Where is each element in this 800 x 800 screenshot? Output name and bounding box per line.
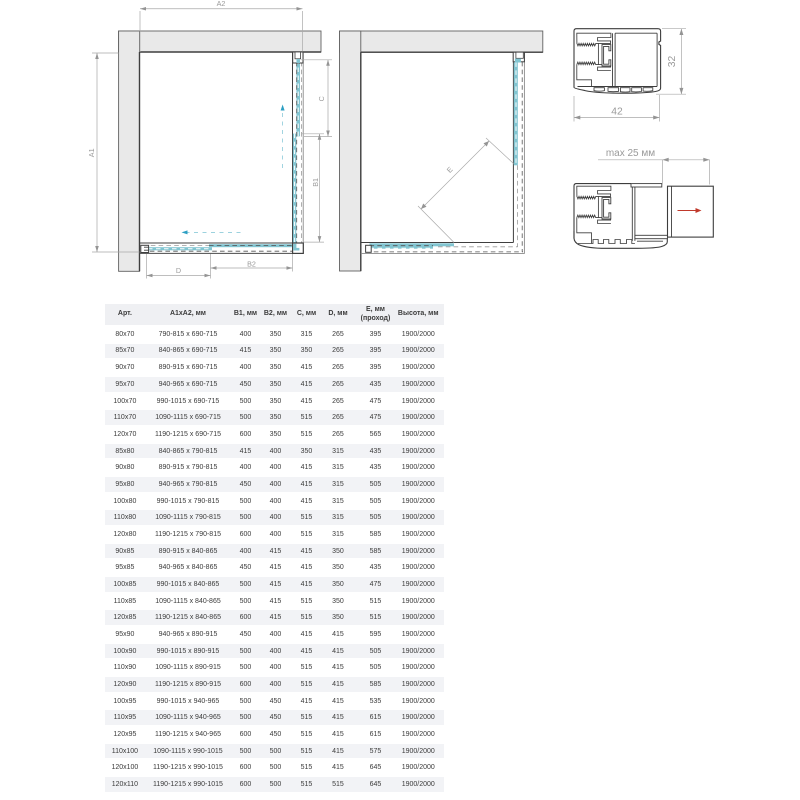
svg-text:A1: A1 bbox=[87, 148, 96, 157]
svg-text:C: C bbox=[317, 96, 326, 101]
svg-text:D: D bbox=[176, 266, 181, 275]
svg-text:A2: A2 bbox=[217, 0, 226, 8]
svg-text:32: 32 bbox=[667, 56, 678, 68]
svg-text:E: E bbox=[445, 165, 455, 175]
svg-text:42: 42 bbox=[611, 107, 623, 118]
svg-text:B2: B2 bbox=[247, 259, 256, 268]
svg-text:max 25 мм: max 25 мм bbox=[606, 148, 655, 159]
svg-text:B1: B1 bbox=[311, 178, 320, 187]
